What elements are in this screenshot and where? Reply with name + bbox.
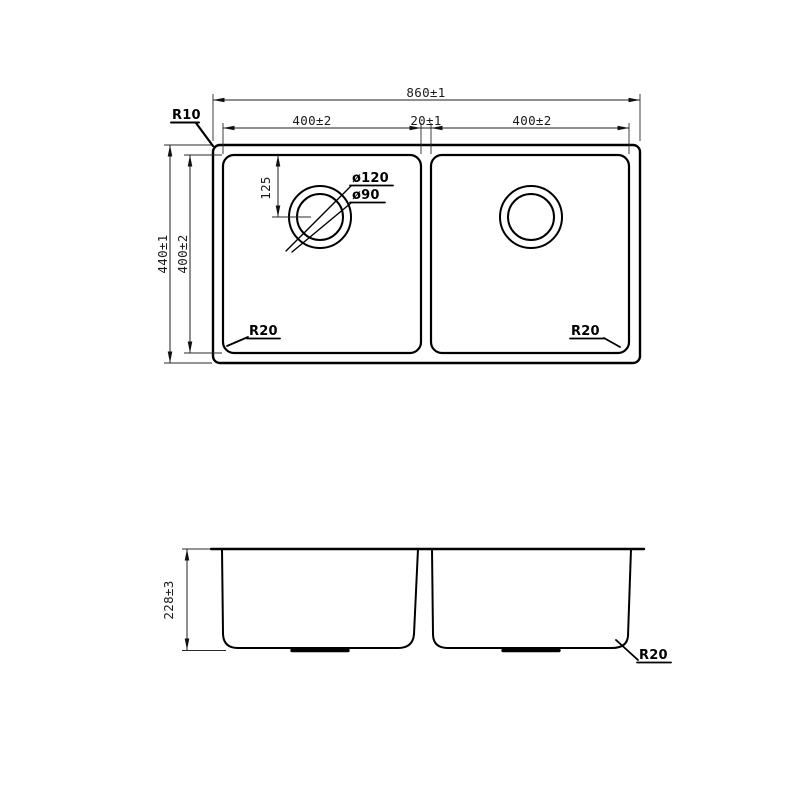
label-drain-outer-dia: ø120 [352,171,389,186]
right-bowl-profile [432,549,631,648]
label-right-bowl-corner-radius: R20 [571,324,600,339]
technical-drawing-page: 860±1 400±2 20±1 400±2 440±1 40 [0,0,800,800]
dim-bowl-widths: 400±2 20±1 400±2 [223,113,629,154]
dim-drain-offset: 125 [258,155,311,217]
top-view: 860±1 400±2 20±1 400±2 440±1 40 [155,85,640,363]
callout-rim-corner-radius: R10 [171,108,213,146]
callout-right-bowl-corner-radius: R20 [570,324,620,347]
side-view: 228±3 R20 [161,549,671,663]
dim-bowl-height: 228±3 [161,549,226,651]
dim-overall-width-text: 860±1 [406,85,445,100]
dim-bowl-inner-depth: 400±2 [175,155,222,353]
left-bowl-profile [222,549,418,648]
dim-bowl-height-text: 228±3 [161,580,176,619]
label-left-bowl-corner-radius: R20 [249,324,278,339]
dim-bowl-inner-depth-text: 400±2 [175,234,190,273]
sink-section-outline [211,549,644,651]
label-rim-corner-radius: R10 [172,108,201,123]
dim-right-bowl-width-text: 400±2 [512,113,551,128]
label-bottom-corner-radius: R20 [639,648,668,663]
label-drain-inner-dia: ø90 [352,188,380,203]
callout-left-bowl-corner-radius: R20 [227,324,280,346]
right-drain-inner-circle [508,194,554,240]
right-drain-outer-circle [500,186,562,248]
dim-drain-offset-text: 125 [258,176,273,199]
dim-left-bowl-width-text: 400±2 [292,113,331,128]
sink-technical-drawing: 860±1 400±2 20±1 400±2 440±1 40 [0,0,800,800]
dim-center-divider-text: 20±1 [410,113,441,128]
dim-overall-depth-text: 440±1 [155,234,170,273]
